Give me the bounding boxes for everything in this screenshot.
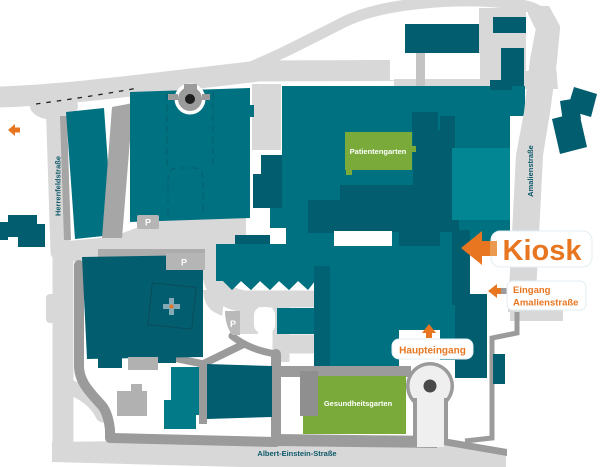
svg-text:Eingang: Eingang <box>513 285 551 296</box>
svg-text:Amalienstraße: Amalienstraße <box>513 298 578 309</box>
svg-text:P: P <box>230 319 236 329</box>
svg-text:Gesundheitsgarten: Gesundheitsgarten <box>324 399 393 408</box>
svg-text:Amalienstraße: Amalienstraße <box>526 145 535 197</box>
svg-text:P: P <box>181 258 187 268</box>
svg-text:P: P <box>145 218 151 228</box>
svg-text:Haupteingang: Haupteingang <box>399 346 466 357</box>
svg-text:Herrenfeldstraße: Herrenfeldstraße <box>54 156 63 216</box>
svg-text:Kiosk: Kiosk <box>503 235 583 267</box>
svg-text:Patientengarten: Patientengarten <box>350 147 407 156</box>
svg-text:Albert-Einstein-Straße: Albert-Einstein-Straße <box>257 449 336 458</box>
